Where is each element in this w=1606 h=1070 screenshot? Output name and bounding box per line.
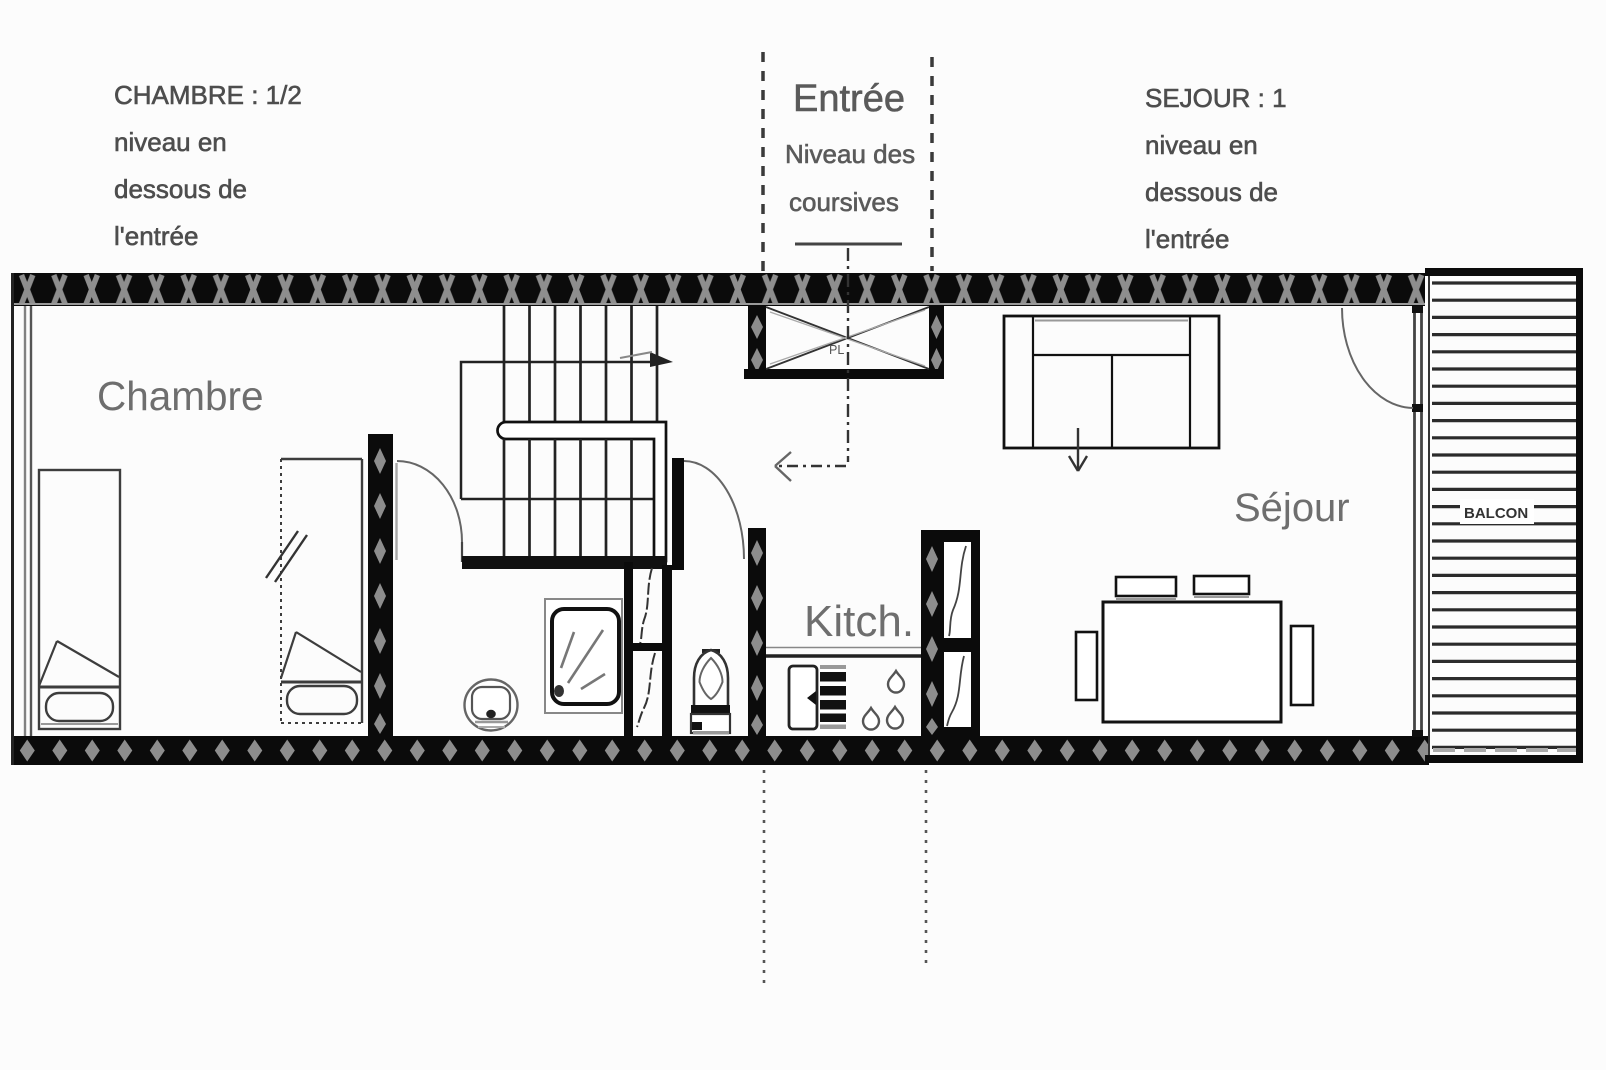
svg-text:coursives: coursives — [789, 187, 899, 217]
svg-text:SEJOUR : 1: SEJOUR : 1 — [1145, 83, 1287, 113]
svg-text:CHAMBRE : 1/2: CHAMBRE : 1/2 — [114, 80, 302, 110]
svg-text:Chambre: Chambre — [97, 373, 264, 419]
svg-text:dessous de: dessous de — [1145, 177, 1278, 207]
svg-text:Entrée: Entrée — [793, 78, 905, 120]
svg-text:l'entrée: l'entrée — [1145, 224, 1229, 254]
svg-text:Kitch.: Kitch. — [804, 597, 914, 646]
svg-text:dessous de: dessous de — [114, 174, 247, 204]
svg-text:Séjour: Séjour — [1234, 486, 1350, 530]
svg-text:PL: PL — [829, 343, 844, 357]
svg-text:Niveau des: Niveau des — [785, 139, 915, 169]
svg-text:l'entrée: l'entrée — [114, 221, 198, 251]
svg-text:niveau en: niveau en — [114, 127, 227, 157]
svg-text:niveau en: niveau en — [1145, 130, 1258, 160]
svg-text:BALCON: BALCON — [1464, 505, 1528, 522]
